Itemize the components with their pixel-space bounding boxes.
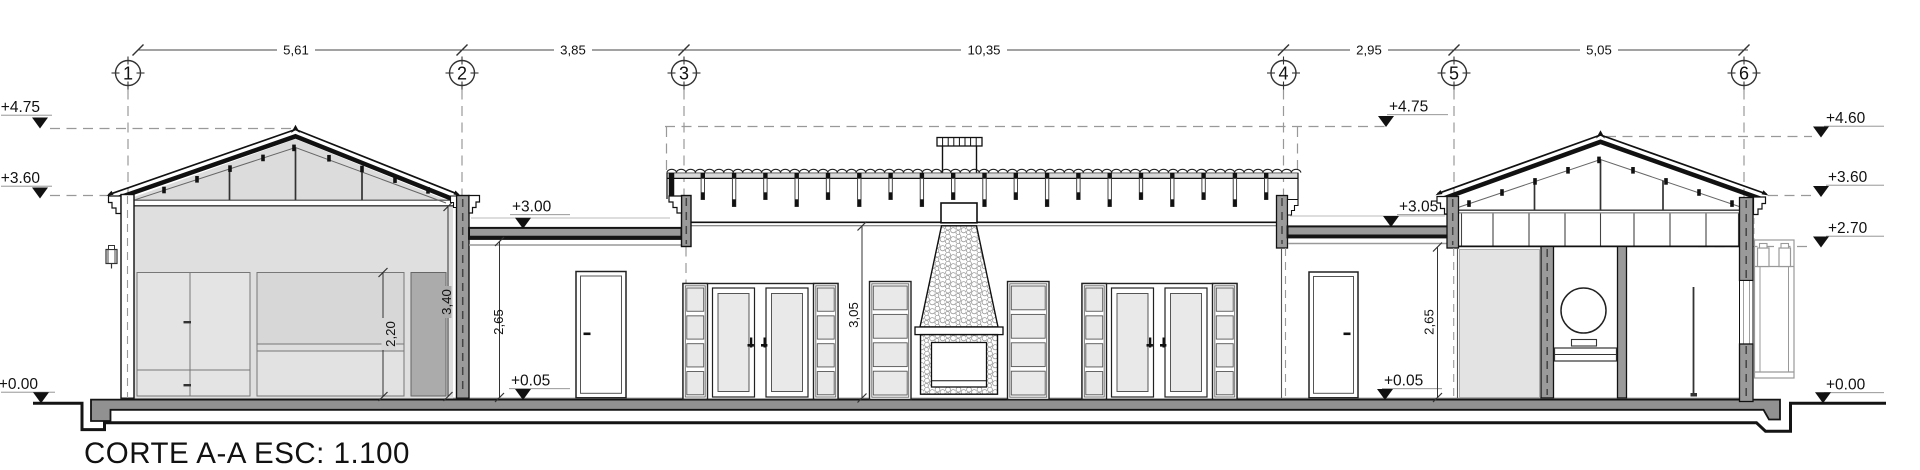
svg-text:+3.05: +3.05 — [1399, 199, 1438, 216]
svg-text:2,20: 2,20 — [383, 321, 398, 347]
svg-text:+0.05: +0.05 — [511, 373, 550, 390]
svg-text:+0.05: +0.05 — [1384, 373, 1423, 390]
svg-text:+4.60: +4.60 — [1826, 110, 1866, 127]
svg-text:1: 1 — [123, 64, 133, 84]
svg-text:+2.70: +2.70 — [1828, 220, 1868, 237]
svg-text:4: 4 — [1278, 64, 1288, 84]
svg-text:CORTE A-A ESC: 1.100: CORTE A-A ESC: 1.100 — [84, 437, 410, 470]
svg-text:10,35: 10,35 — [967, 43, 1000, 58]
svg-text:3,85: 3,85 — [560, 43, 586, 58]
svg-text:5,61: 5,61 — [283, 43, 309, 58]
svg-text:2,65: 2,65 — [1422, 309, 1437, 335]
svg-text:2: 2 — [457, 64, 467, 84]
svg-text:+0.00: +0.00 — [1826, 377, 1866, 394]
svg-text:2,95: 2,95 — [1356, 43, 1382, 58]
svg-text:6: 6 — [1739, 64, 1749, 84]
svg-text:5: 5 — [1449, 64, 1459, 84]
svg-text:+3.60: +3.60 — [1, 170, 41, 187]
svg-text:+4.75: +4.75 — [1, 99, 40, 116]
svg-text:+4.75: +4.75 — [1389, 99, 1428, 116]
svg-text:+3.00: +3.00 — [512, 199, 552, 216]
svg-text:3,05: 3,05 — [846, 302, 861, 328]
svg-text:3: 3 — [679, 64, 689, 84]
svg-text:5,05: 5,05 — [1586, 43, 1612, 58]
svg-text:3,40: 3,40 — [439, 289, 454, 315]
svg-text:+3.60: +3.60 — [1828, 169, 1868, 186]
svg-text:2,65: 2,65 — [491, 309, 506, 335]
svg-text:+0.00: +0.00 — [0, 376, 38, 393]
